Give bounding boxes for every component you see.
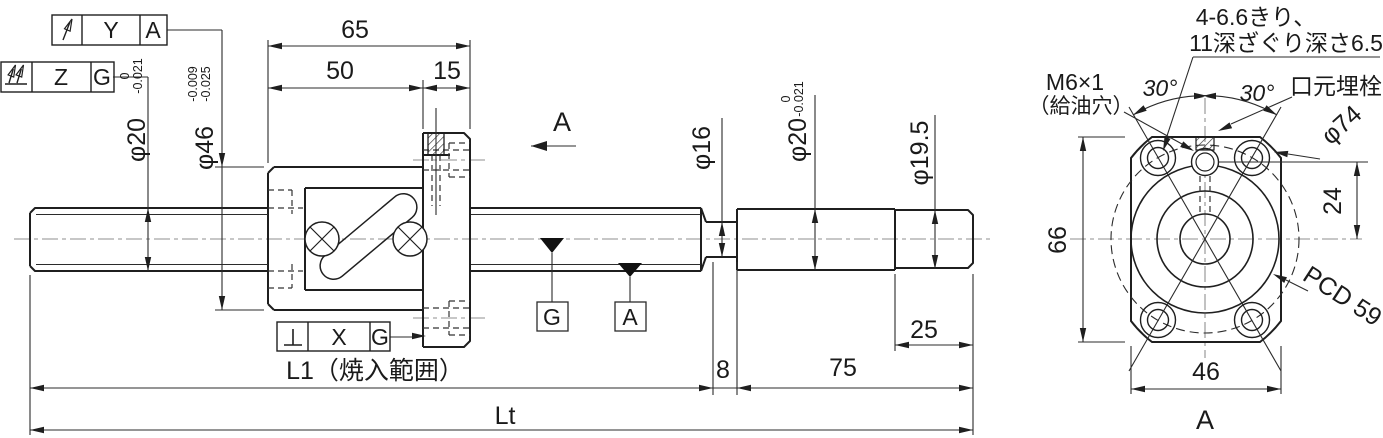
- frame-xg-value: X: [331, 324, 346, 350]
- frame-zg-datum: G: [93, 64, 111, 90]
- ballscrew-drawing: 65 50 15 A φ20 0 -0.021 φ46 -0.009 -0.02…: [0, 0, 1383, 438]
- end-view: 4-6.6きり、 11深ざぐり深さ6.5 M6×1 （給油穴） 口元埋栓 30°…: [1029, 4, 1383, 435]
- dim-phi46-sub: -0.025: [199, 66, 213, 101]
- dim-phi16: φ16: [688, 126, 716, 170]
- dim-phi19-5: φ19.5: [906, 121, 934, 186]
- frame-zg-value: Z: [54, 64, 68, 90]
- dim-15: 15: [433, 57, 461, 85]
- drawing-canvas: 65 50 15 A φ20 0 -0.021 φ46 -0.009 -0.02…: [0, 0, 1383, 438]
- angle-left-label: 30°: [1143, 75, 1178, 101]
- dim-50: 50: [326, 57, 354, 85]
- perpendicularity-icon: [284, 329, 302, 345]
- dim-phi20-left-sub: -0.021: [131, 58, 145, 93]
- datum-target-g-label: G: [543, 304, 561, 330]
- note-counterbore-line1: 4-6.6きり、: [1196, 4, 1317, 30]
- dim-l1: L1（焼入範囲）: [286, 357, 464, 385]
- note-m6-oil: （給油穴）: [1029, 95, 1134, 118]
- dim-8: 8: [716, 356, 730, 384]
- frame-ya-datum: A: [145, 17, 161, 43]
- note-m6: M6×1: [1046, 69, 1104, 95]
- dim-lt: Lt: [495, 402, 516, 430]
- frame-ya-value: Y: [103, 17, 118, 43]
- dim-phi74: φ74: [1316, 100, 1368, 150]
- section-arrow-label: A: [553, 107, 571, 137]
- dim-phi20-right-sub: -0.021: [792, 81, 806, 116]
- note-plug: 口元埋栓: [1290, 73, 1382, 99]
- total-runout-icon: [5, 69, 27, 84]
- frame-xg-datum: G: [371, 324, 389, 350]
- dim-75: 75: [829, 354, 857, 382]
- dim-pcd59: PCD 59: [1298, 261, 1383, 332]
- dim-25: 25: [910, 316, 938, 344]
- side-view: 65 50 15 A φ20 0 -0.021 φ46 -0.009 -0.02…: [30, 16, 973, 435]
- end-view-label: A: [1196, 405, 1214, 435]
- angle-right-label: 30°: [1240, 80, 1275, 106]
- dim-phi20-right-sup: 0: [779, 95, 793, 102]
- dim-phi20-left: φ20: [123, 118, 151, 162]
- datum-target-a-label: A: [622, 304, 638, 330]
- dim-phi20-right: φ20: [784, 118, 812, 162]
- shaft-nut-outline: [30, 133, 973, 347]
- dim-65: 65: [341, 16, 369, 44]
- note-counterbore-line2: 11深ざぐり深さ6.5: [1189, 30, 1383, 56]
- dim-66: 66: [1044, 226, 1072, 254]
- plug-hatched-end: [1196, 137, 1214, 150]
- dim-phi46: φ46: [191, 126, 219, 170]
- dim-46: 46: [1192, 358, 1220, 386]
- dim-phi46-sup: -0.009: [186, 66, 200, 101]
- dim-24: 24: [1319, 187, 1347, 215]
- dim-phi20-left-sup: 0: [118, 72, 132, 79]
